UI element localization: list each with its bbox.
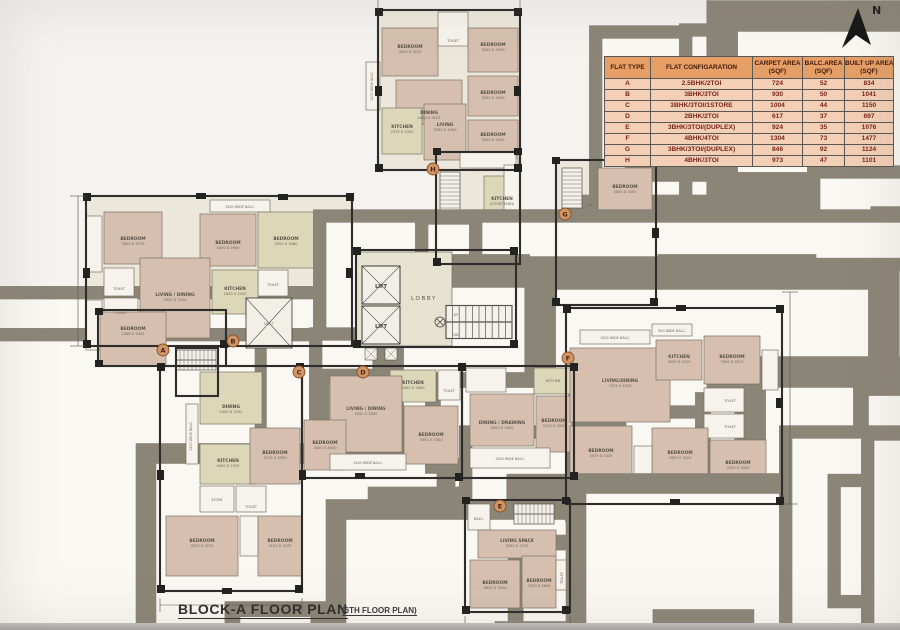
north-label: N <box>872 4 881 17</box>
floor-plan-sheet: 1500 WIDE PASSAGE 1500 WIDE PASSAGE BEDR… <box>0 0 900 630</box>
svg-text:TOILET: TOILET <box>114 311 128 315</box>
header-flat-type: FLAT TYPE <box>605 57 651 79</box>
marker-flat-h: H <box>427 163 439 175</box>
svg-text:3250 X 3075: 3250 X 3075 <box>190 544 213 548</box>
marker-flat-e: E <box>494 500 506 512</box>
table-row: H4BHK/3TOI973471101 <box>605 156 894 167</box>
room-e-dining <box>470 394 534 446</box>
room-e-toilet-top <box>466 368 506 392</box>
svg-text:LIFT: LIFT <box>375 324 387 330</box>
svg-text:3350 X 3600: 3350 X 3600 <box>527 584 551 588</box>
room-c-dining <box>200 372 262 424</box>
svg-text:4400 X 3025: 4400 X 3025 <box>417 116 440 120</box>
svg-text:LOBBY: LOBBY <box>411 296 437 302</box>
header-balc-area: BALC.AREA(SQF) <box>803 57 845 79</box>
svg-text:TOILET: TOILET <box>560 571 564 585</box>
svg-text:3625 X 3050: 3625 X 3050 <box>483 586 507 590</box>
stairs-icon <box>562 168 582 208</box>
svg-text:UP: UP <box>454 313 459 317</box>
table-row: E3BHK/3TOI/(DUPLEX)924351076 <box>605 123 894 134</box>
svg-text:2400 X 1800: 2400 X 1800 <box>401 386 425 390</box>
svg-text:A: A <box>160 347 165 355</box>
stairs-icon <box>514 504 554 524</box>
header-flat-configuration: FLAT CONFIGARATION <box>651 57 753 79</box>
table-row: C3BHK/3TOI/1STORE1004441150 <box>605 101 894 112</box>
svg-text:3050 X 3300: 3050 X 3300 <box>419 438 443 442</box>
svg-text:D: D <box>360 369 366 377</box>
svg-text:G: G <box>562 211 567 219</box>
svg-text:TOILET: TOILET <box>723 425 737 429</box>
svg-text:3050 X 3480: 3050 X 3480 <box>274 242 298 246</box>
svg-text:3075 X 3425: 3075 X 3425 <box>589 454 612 458</box>
svg-text:7075 X 4025: 7075 X 4025 <box>608 384 631 388</box>
svg-text:1200 WIDE BALC.: 1200 WIDE BALC. <box>225 205 255 209</box>
svg-text:TOILET: TOILET <box>446 39 460 43</box>
svg-text:BALC.: BALC. <box>474 517 484 521</box>
svg-text:3350 X 4400: 3350 X 4400 <box>433 128 457 132</box>
svg-text:3050 X 3300: 3050 X 3300 <box>354 412 378 416</box>
svg-text:H: H <box>430 166 435 174</box>
table-header-row: FLAT TYPE FLAT CONFIGARATION CARPET AREA… <box>605 57 894 79</box>
svg-text:(COURTYARD): (COURTYARD) <box>490 202 515 206</box>
svg-text:DN: DN <box>453 333 459 337</box>
room-a-toilet1 <box>104 268 134 296</box>
room-a-bedroom3 <box>100 312 166 366</box>
svg-text:3050 X 3575: 3050 X 3575 <box>398 50 421 54</box>
svg-text:3125 X 3075: 3125 X 3075 <box>268 544 291 548</box>
svg-text:TOILET: TOILET <box>244 505 258 509</box>
table-row: A2.5BHK/2TOI72452834 <box>605 79 894 90</box>
svg-text:3215 X 3050: 3215 X 3050 <box>542 424 566 428</box>
svg-text:3350 X 7225: 3350 X 7225 <box>163 298 186 302</box>
table-row: G3BHK/3TOI/(DUPLEX)846921124 <box>605 145 894 156</box>
room-d-toilet <box>438 370 460 400</box>
svg-text:C: C <box>297 369 302 377</box>
svg-text:E: E <box>498 503 502 511</box>
marker-flat-d: D <box>357 366 369 378</box>
svg-text:3050 X 3050: 3050 X 3050 <box>481 96 505 100</box>
header-carpet-area: CARPET AREA(SQF) <box>753 57 803 79</box>
svg-text:3050 X 3050: 3050 X 3050 <box>613 190 637 194</box>
header-built-up-area: BUILT UP AREA(SQF) <box>845 57 894 79</box>
svg-text:KITCHEN: KITCHEN <box>546 379 561 383</box>
svg-text:3050 X 2235: 3050 X 2235 <box>505 544 528 548</box>
svg-text:STORE: STORE <box>211 498 222 502</box>
svg-text:2400 X 1932: 2400 X 1932 <box>219 410 242 414</box>
svg-text:3300 X 3075: 3300 X 3075 <box>720 360 743 364</box>
svg-text:4400 X 1932: 4400 X 1932 <box>216 464 239 468</box>
svg-text:TOILET: TOILET <box>112 287 126 291</box>
svg-text:1200 WIDE BALC.: 1200 WIDE BALC. <box>353 461 383 465</box>
svg-text:DUCT: DUCT <box>264 322 274 326</box>
svg-text:1200 WIDE BALC.: 1200 WIDE BALC. <box>495 457 525 461</box>
svg-text:3000 X 3030: 3000 X 3030 <box>313 446 337 450</box>
marker-flat-f: F <box>562 352 574 364</box>
svg-text:3350 X 3425: 3350 X 3425 <box>726 466 749 470</box>
svg-text:TOILET: TOILET <box>723 399 737 403</box>
table-row: B3BHK/3TOI930501041 <box>605 90 894 101</box>
svg-text:F: F <box>566 355 570 363</box>
table-row: F4BHK/4TOI1304731477 <box>605 134 894 145</box>
bottom-border-bar <box>0 623 900 630</box>
stairs-icon <box>440 172 460 212</box>
flat-configuration-table: FLAT TYPE FLAT CONFIGARATION CARPET AREA… <box>604 56 894 167</box>
svg-text:TOILET: TOILET <box>266 283 280 287</box>
svg-text:900 WIDE BALC.: 900 WIDE BALC. <box>658 329 686 333</box>
svg-text:2375 X 2400: 2375 X 2400 <box>390 130 414 134</box>
svg-text:1200 WIDE BALC.: 1200 WIDE BALC. <box>189 421 193 451</box>
bed-icon <box>868 434 900 630</box>
marker-flat-a: A <box>157 344 169 356</box>
svg-text:DN: DN <box>587 203 593 207</box>
svg-text:3000 X 3575: 3000 X 3575 <box>121 242 144 246</box>
svg-text:1200 WIDE BALC.: 1200 WIDE BALC. <box>370 71 374 101</box>
svg-text:3350 X 3425: 3350 X 3425 <box>668 456 691 460</box>
svg-text:2430 X 2000: 2430 X 2000 <box>223 292 247 296</box>
svg-text:1200 WIDE BALC.: 1200 WIDE BALC. <box>600 336 630 340</box>
svg-text:LIFT: LIFT <box>375 284 387 290</box>
svg-text:3050 X 3425: 3050 X 3425 <box>481 138 504 142</box>
svg-text:B: B <box>231 338 236 346</box>
svg-text:TOILET: TOILET <box>442 389 456 393</box>
svg-text:2368 X 3325: 2368 X 3325 <box>121 332 144 336</box>
marker-flat-g: G <box>559 208 571 220</box>
marker-flat-b: B <box>227 335 239 347</box>
svg-text:3050 X 2025: 3050 X 2025 <box>667 360 690 364</box>
svg-text:3000 X 2900: 3000 X 2900 <box>216 246 240 250</box>
svg-text:3050 X 3050: 3050 X 3050 <box>481 48 505 52</box>
marker-flat-c: C <box>293 366 305 378</box>
plan-title: BLOCK-A FLOOR PLAN <box>178 601 348 619</box>
table-row: D2BHK/2TOI61737697 <box>605 112 894 123</box>
svg-text:3050 X 3000: 3050 X 3000 <box>490 426 514 430</box>
svg-text:3125 X 3050: 3125 X 3050 <box>263 456 287 460</box>
plan-subtitle: (6TH FLOOR PLAN) <box>342 606 417 616</box>
